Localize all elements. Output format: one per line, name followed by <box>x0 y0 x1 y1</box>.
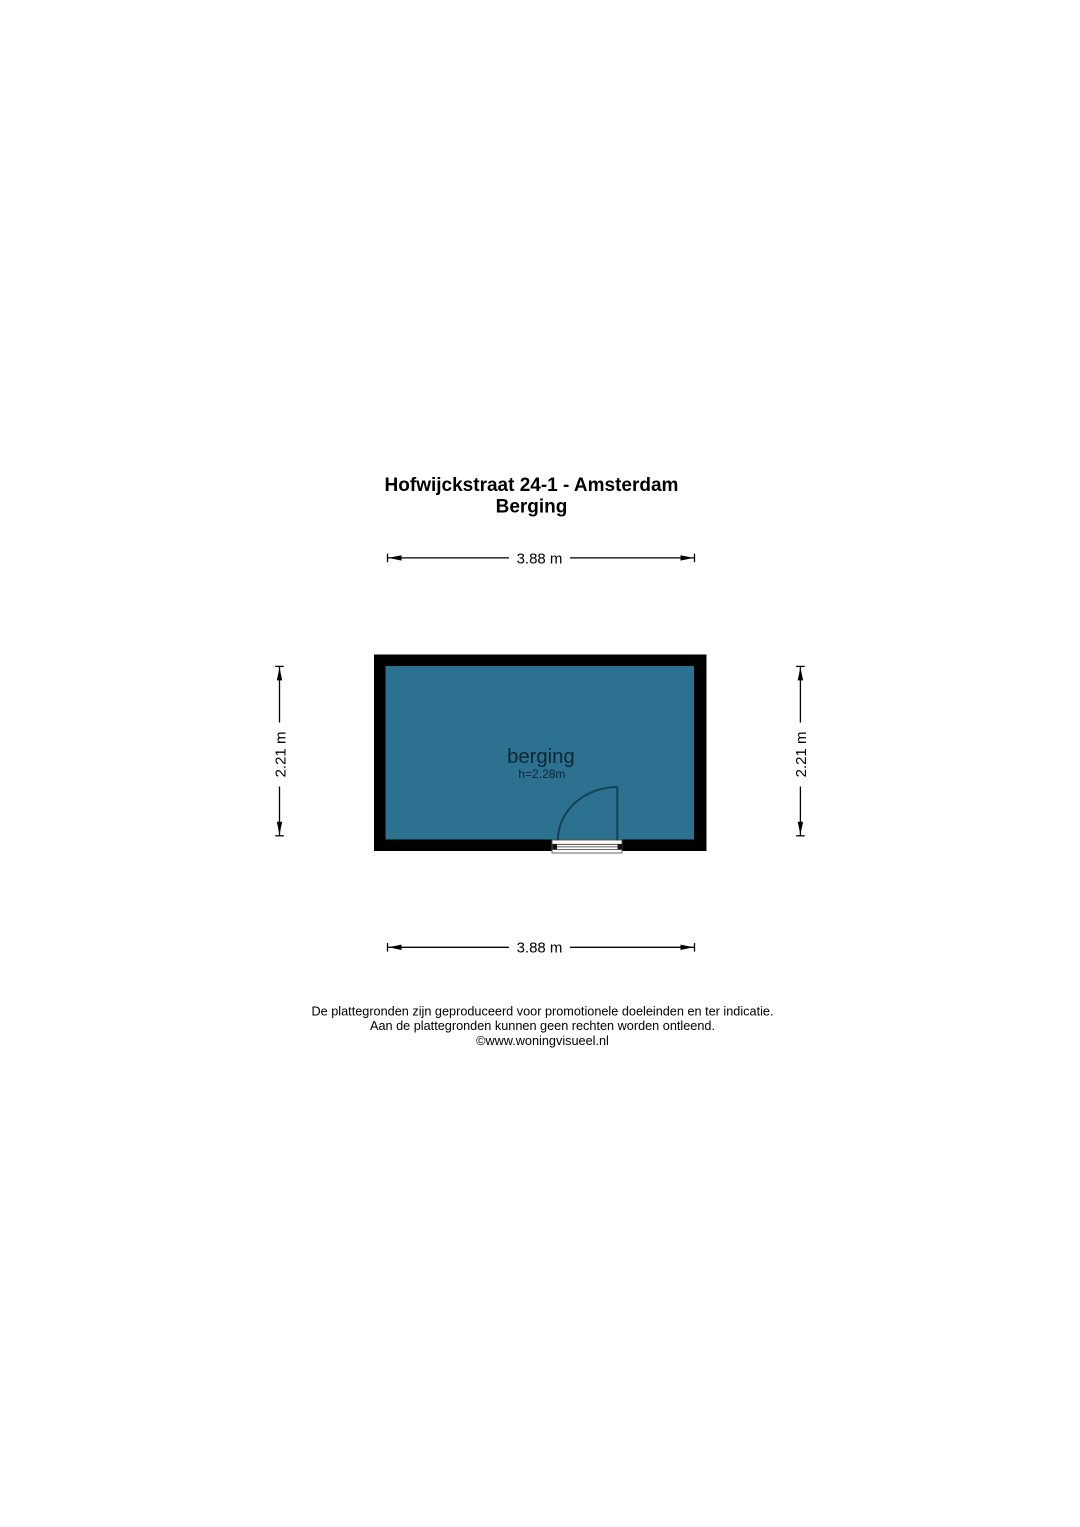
svg-text:©www.woningvisueel.nl: ©www.woningvisueel.nl <box>476 1034 609 1048</box>
svg-text:h=2.28m: h=2.28m <box>518 767 565 781</box>
svg-text:Berging: Berging <box>496 497 568 518</box>
svg-text:berging: berging <box>507 746 575 768</box>
svg-text:3.88 m: 3.88 m <box>517 550 563 567</box>
svg-text:De plattegronden zijn geproduc: De plattegronden zijn geproduceerd voor … <box>312 1004 774 1018</box>
svg-text:2.21 m: 2.21 m <box>793 732 810 778</box>
svg-text:3.88 m: 3.88 m <box>517 940 563 957</box>
svg-text:Aan de plattegronden kunnen ge: Aan de plattegronden kunnen geen rechten… <box>370 1019 715 1033</box>
svg-text:Hofwijckstraat 24-1 - Amsterda: Hofwijckstraat 24-1 - Amsterdam <box>385 475 679 496</box>
svg-text:2.21 m: 2.21 m <box>272 732 289 778</box>
